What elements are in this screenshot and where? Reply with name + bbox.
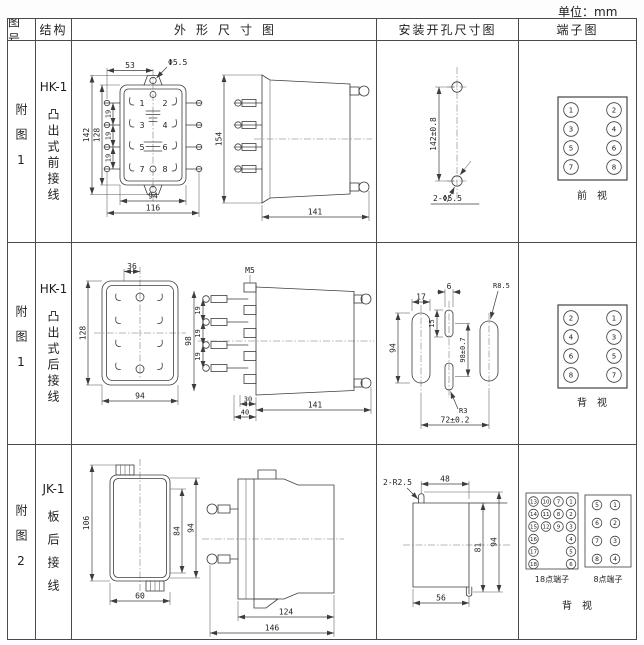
dim-94: 94 [389,343,398,353]
dim-98-tol: 98±0.7 [459,337,467,362]
figure-number: 附图1 [13,305,30,382]
view-label: 背 视 [562,599,592,612]
extension-lines [90,465,334,637]
terminal-num: 2 [569,512,573,518]
screw-label: M5 [245,266,255,275]
terminal-num: 8 [557,512,561,518]
row2-mounting-cell: 17 94 6 15 98±0.7 R8.5 R3 72±0.2 [377,243,519,445]
dim-56: 56 [436,594,446,603]
row2-outline-cell: 36 128 94 M5 98 19 19 19 30 [72,243,377,445]
terminal-num: 2 [569,315,573,323]
terminal-num: 1 [612,315,616,323]
terminal-num: 4 [569,537,573,543]
dimension-lines [88,272,178,402]
terminal-num: 7 [612,372,616,380]
terminal-num: 6 [569,353,574,361]
terminal-num: 5 [612,353,616,361]
dim-60: 60 [135,592,145,601]
contact-num: 5 [139,143,144,152]
header-structure: 结构 [36,19,72,41]
mounting-slot-drawing: 17 94 6 15 98±0.7 R8.5 R3 72±0.2 [377,243,519,445]
terminal-num: 15 [530,525,537,531]
header-mounting: 安装开孔尺寸图 [377,19,519,41]
terminal-num: 5 [569,550,573,556]
contact-num: 6 [162,143,167,152]
dim-94: 94 [490,537,499,547]
terminal-num: 9 [557,525,561,531]
dim-116: 116 [146,204,161,213]
terminal-num: 6 [612,145,617,153]
dim-72-tol: 72±0.2 [441,416,470,425]
header-outline: 外形尺寸图 [72,19,377,41]
terminal-num: 3 [612,334,616,342]
dim-81: 81 [474,543,483,553]
spec-sheet-page: { "unit_label": "单位：mm", "header": { "fi… [0,0,644,645]
row2-structure-cell: HK-1 凸出式后接线 [36,243,72,445]
terminal-diagram-back: 2 1 4 3 6 5 8 7 背 视 [519,243,636,445]
terminal-num: 4 [613,556,617,563]
dim-146: 146 [265,624,280,633]
structure-name: 板后接线 [45,510,62,602]
terminal-num: 8 [612,164,616,172]
header-figure: 图号 [8,19,36,41]
terminal-diagrams-18-8: 13 10 7 1 14 11 8 2 15 12 9 3 16 4 17 5 … [519,445,636,639]
terminal-num: 2 [612,107,616,115]
model-name: HK-1 [40,80,68,94]
extension-lines [90,68,369,221]
terminal-18-circles [529,497,576,569]
dim-19: 19 [105,154,113,162]
contact-numbers: 1 2 3 4 5 6 7 8 [139,99,167,174]
side-view [203,283,371,395]
terminal-num: 11 [543,512,550,518]
row1-outline-cell: 1 2 3 4 5 6 7 8 5 [72,41,377,243]
mounting-hole-drawing: 142±0.8 2-Φ5.5 [377,41,519,243]
view-label: 背 视 [577,396,607,409]
dim-19: 19 [105,110,113,118]
dim-53: 53 [125,61,135,70]
terminal-num: 8 [595,556,599,563]
outline-drawing-rear-wired: 36 128 94 M5 98 19 19 19 30 [72,243,377,445]
terminal-num: 12 [543,525,550,531]
row3-figure-cell: 附图2 [8,445,36,639]
terminal-num: 3 [569,525,573,531]
terminal-num: 7 [557,500,561,506]
dim-40: 40 [241,409,249,417]
terminal-num: 5 [569,145,573,153]
radius-r85: R8.5 [493,282,510,290]
outline-drawing-board-rear: 106 84 94 60 124 146 [72,445,377,639]
terminal-num: 3 [569,126,573,134]
holes-label: 2-Φ5.5 [433,194,462,203]
contact-num: 2 [162,99,167,108]
model-name: HK-1 [40,282,68,296]
dim-106: 106 [82,516,91,531]
row1-figure-cell: 附图1 [8,41,36,243]
spec-table: 图号 结构 外形尺寸图 安装开孔尺寸图 端子图 附图1 HK-1 凸出式前接线 [7,18,637,640]
header-terminal: 端子图 [519,19,636,41]
row3-outline-cell: 106 84 94 60 124 146 [72,445,377,639]
terminal-diagram-front: 1 2 3 4 5 6 7 8 前 视 [519,41,636,243]
mounting-cutout-drawing: 2-R2.5 48 81 94 56 [377,445,519,639]
dim-94: 94 [135,392,145,401]
row3-structure-cell: JK-1 板后接线 [36,445,72,639]
terminal-18-label: 18点端子 [535,574,569,584]
radius-label: 2-R2.5 [383,478,412,487]
dim-19: 19 [194,352,202,360]
row3-mounting-cell: 2-R2.5 48 81 94 56 [377,445,519,639]
dim-128: 128 [79,326,88,341]
dim-98: 98 [184,336,193,346]
dim-141: 141 [308,401,323,410]
dim-19: 19 [105,132,113,140]
terminal-num: 1 [569,500,573,506]
dim-128: 128 [93,128,102,143]
structure-name: 凸出式前接线 [45,108,62,204]
dim-hole: Φ5.5 [168,58,187,67]
terminal-num: 10 [543,500,550,506]
terminal-num: 16 [530,537,537,543]
row1-terminal-cell: 1 2 3 4 5 6 7 8 前 视 [519,41,636,243]
dim-19: 19 [194,306,202,314]
dim-94: 94 [148,192,158,201]
figure-number: 附图2 [13,504,30,581]
dim-30: 30 [244,396,252,404]
dim-124: 124 [279,608,294,617]
terminal-num: 1 [569,107,573,115]
dim-19: 19 [194,329,202,337]
terminal-num: 7 [569,164,573,172]
model-name: JK-1 [42,482,64,496]
dim-142-tol: 142±0.8 [429,117,438,151]
terminal-num: 8 [569,372,573,380]
dim-154: 154 [215,132,224,147]
dim-6: 6 [447,282,452,291]
structure-name: 凸出式后接线 [45,310,62,406]
terminal-num: 2 [613,520,617,527]
terminal-num: 1 [613,502,617,509]
terminal-num: 4 [612,126,617,134]
contact-num: 7 [139,165,144,174]
row1-mounting-cell: 142±0.8 2-Φ5.5 [377,41,519,243]
dim-94: 94 [187,523,196,533]
dim-84: 84 [173,526,182,536]
dim-15: 15 [428,319,436,327]
terminal-num: 6 [595,520,599,527]
terminal-8-circles [592,500,620,564]
terminal-num: 5 [595,502,599,509]
view-label: 前 视 [577,189,607,202]
terminal-num: 13 [530,500,537,506]
row3-terminal-cell: 13 10 7 1 14 11 8 2 15 12 9 3 16 4 17 5 … [519,445,636,639]
terminal-num: 4 [569,334,574,342]
outline-drawing-front-wired: 1 2 3 4 5 6 7 8 5 [72,41,377,243]
terminal-num: 7 [595,538,599,545]
contact-num: 3 [139,121,144,130]
terminal-num: 14 [530,512,537,518]
figure-number: 附图1 [13,103,30,180]
terminal-8-label: 8点端子 [593,574,622,584]
row2-figure-cell: 附图1 [8,243,36,445]
dim-48: 48 [440,475,450,484]
extension-lines [395,289,489,429]
contact-num: 8 [162,165,167,174]
dim-36: 36 [127,262,137,271]
contact-num: 1 [139,99,144,108]
row2-terminal-cell: 2 1 4 3 6 5 8 7 背 视 [519,243,636,445]
radius-r3: R3 [459,407,467,415]
terminal-num: 3 [613,538,617,545]
terminal-num: 17 [530,550,537,556]
dim-142: 142 [82,128,91,143]
mounting-slots [412,310,498,390]
contact-num: 4 [162,121,167,130]
terminal-num: 18 [530,562,537,568]
dim-17: 17 [416,293,426,302]
dim-141: 141 [308,208,323,217]
row1-structure-cell: HK-1 凸出式前接线 [36,41,72,243]
terminal-num: 6 [569,562,573,568]
